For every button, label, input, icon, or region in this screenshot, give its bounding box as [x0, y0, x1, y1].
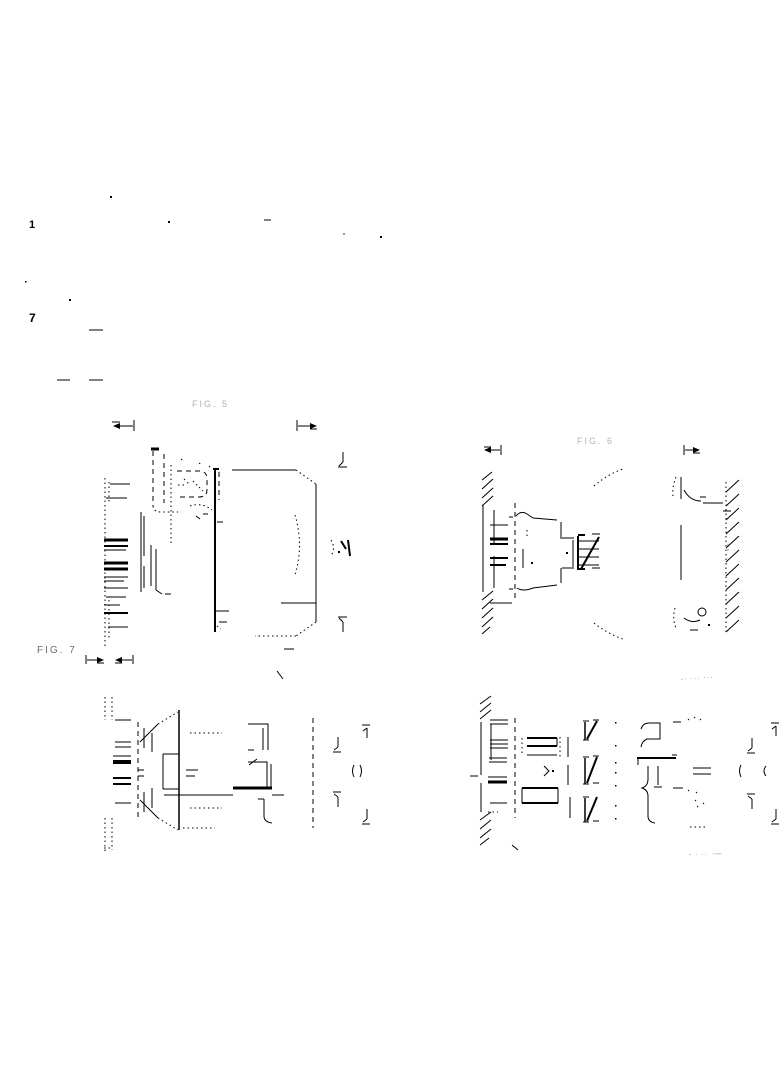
laminated-stack	[104, 697, 131, 852]
section-marker-top-left	[484, 445, 501, 455]
section-marker-row-bottom-left	[86, 655, 133, 664]
section-marker-top-right	[297, 420, 317, 431]
dotted-arcs	[594, 469, 623, 639]
margin-specks	[25, 196, 382, 380]
core-block	[163, 710, 284, 830]
arrow-flags	[333, 725, 370, 824]
pointer-marks	[331, 540, 350, 556]
figure-bottom-right-section-view	[470, 696, 779, 850]
section-marker-top-left	[112, 420, 134, 431]
arrow-flags	[740, 723, 780, 824]
figure-top-right-section-view	[482, 445, 739, 639]
dash-cluster	[673, 717, 711, 827]
housing-outline	[232, 470, 316, 679]
section-marker-top-right	[684, 445, 700, 455]
hatched-wall-left	[470, 696, 518, 850]
figure-label-bottom-left: FIG. 7	[37, 645, 77, 656]
faded-fragment-bottom: - · ·· ·—	[689, 850, 723, 858]
line-art	[0, 0, 784, 1066]
cone-profile	[509, 503, 574, 602]
laminated-stack	[104, 478, 130, 648]
bracket-details	[248, 724, 272, 823]
figure-label-top-left: FIG. 5	[192, 399, 229, 409]
cone-profile	[138, 712, 178, 830]
drawing-sheet: FIG. 5 FIG. 6 FIG. 7 -· ··· ··- - · ·· ·…	[0, 0, 784, 1066]
center-dots	[615, 722, 617, 820]
bracket-details	[637, 723, 677, 823]
hatched-wall-right	[723, 480, 739, 635]
right-bracket-assembly	[673, 477, 728, 630]
stepped-profile	[141, 449, 229, 632]
arrow-flag-upper	[338, 452, 347, 467]
figure-top-left-section-view	[104, 420, 350, 679]
diagonal-vane-boxes	[583, 720, 599, 822]
stacked-blocks	[522, 737, 570, 818]
figure-bottom-left-section-view	[104, 697, 370, 852]
hatched-wall-left	[482, 472, 512, 634]
margin-glyph-1: 1	[29, 219, 35, 231]
margin-glyph-7: 7	[29, 311, 36, 325]
crossed-box	[566, 534, 600, 570]
arrow-flag-lower	[338, 617, 347, 632]
figure-label-top-right: FIG. 6	[577, 436, 614, 446]
